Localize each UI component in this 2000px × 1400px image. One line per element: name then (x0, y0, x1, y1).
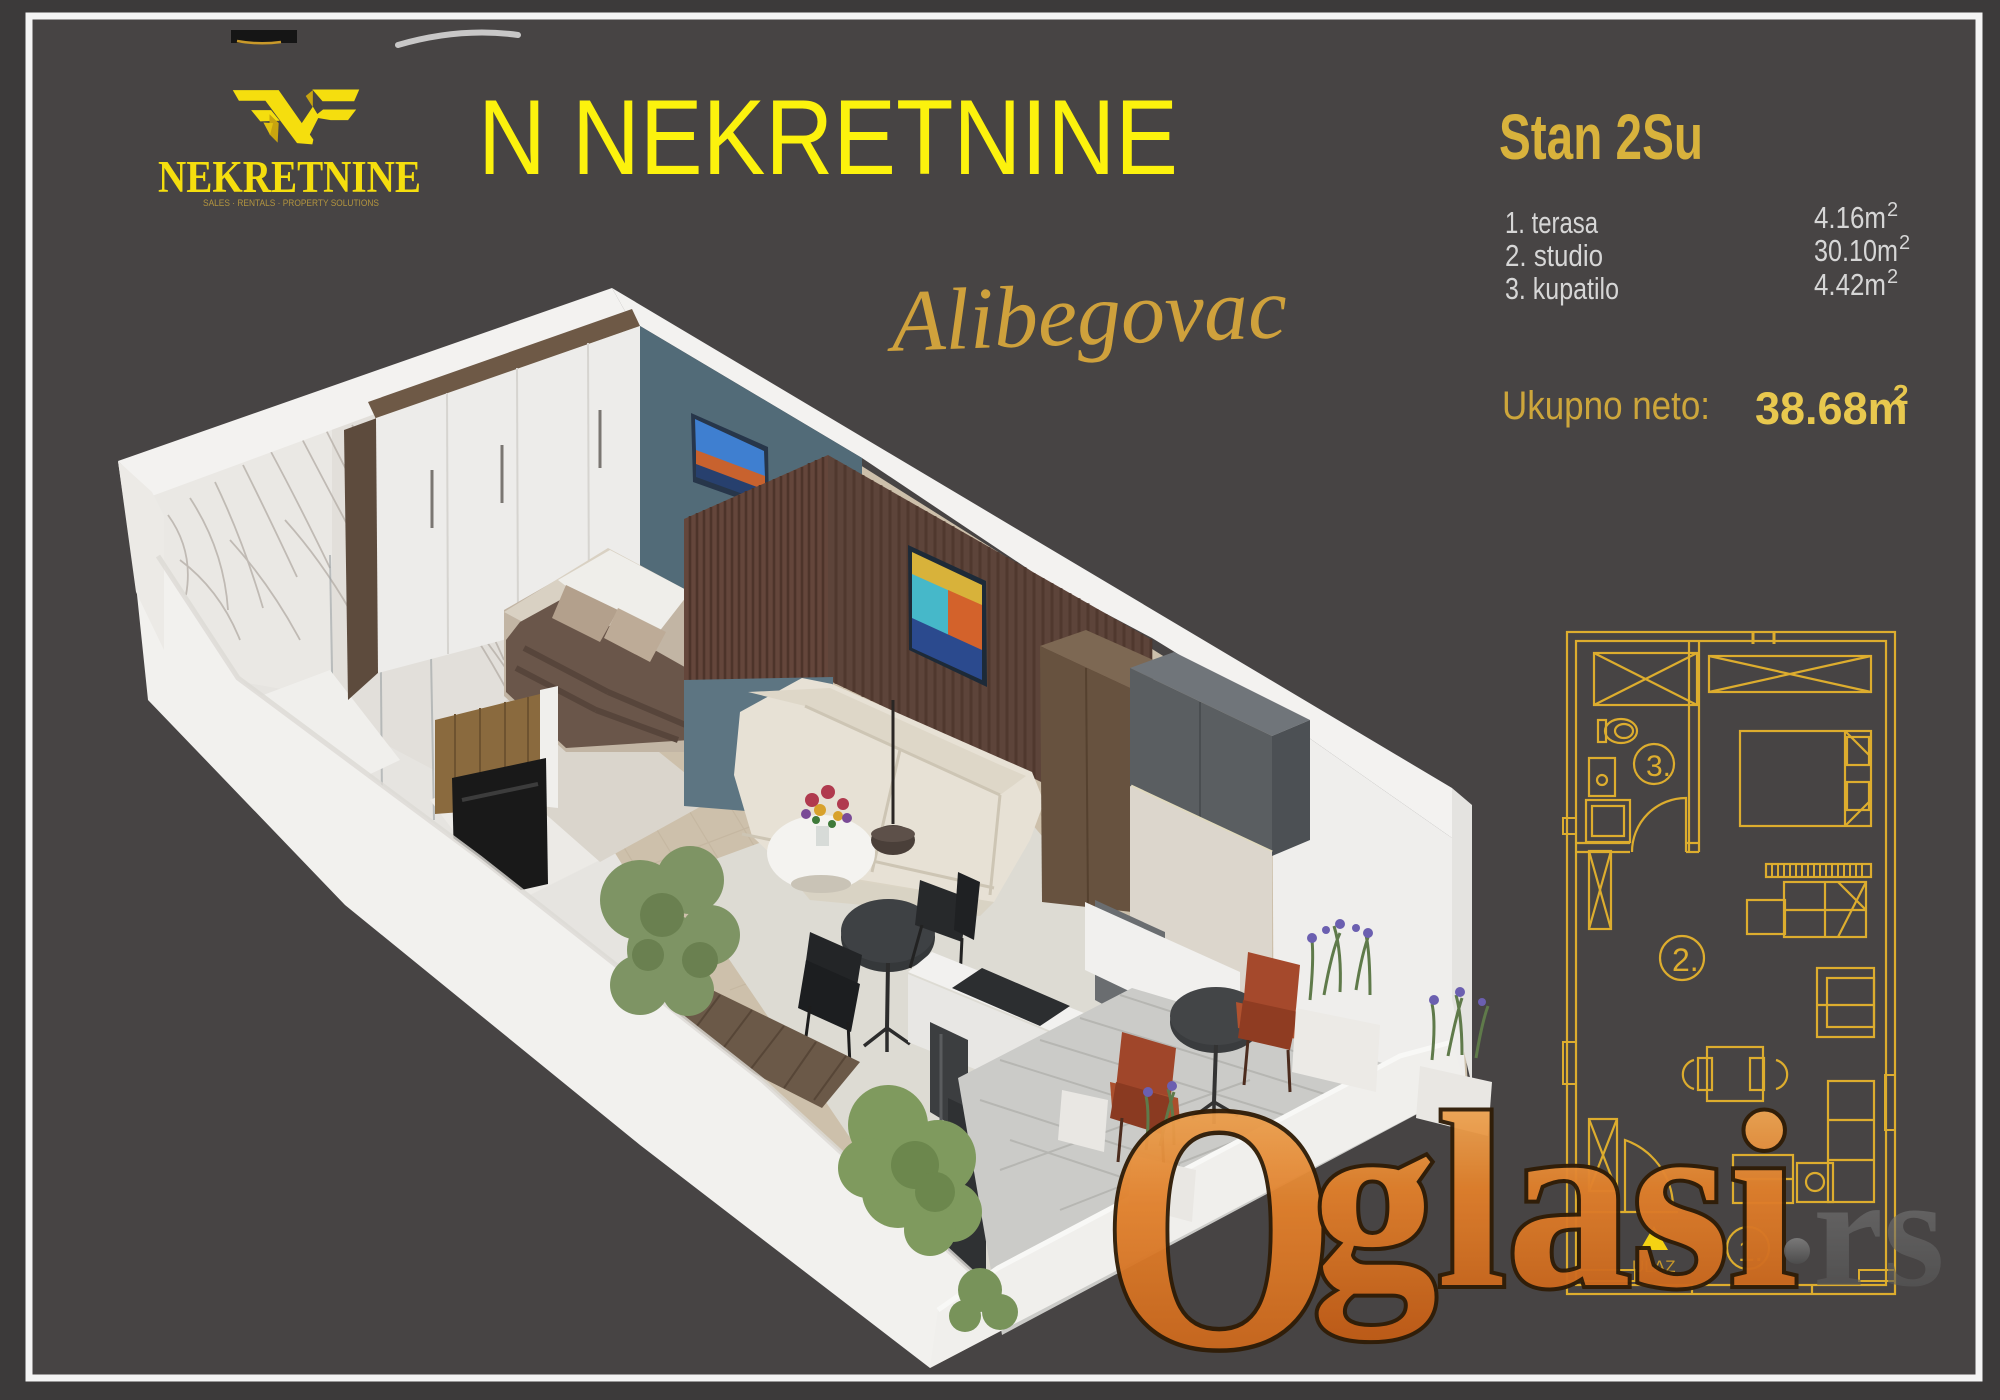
svg-text:30.10m: 30.10m (1814, 233, 1898, 268)
svg-text:2: 2 (1893, 379, 1909, 410)
svg-text:Stan 2Su: Stan 2Su (1499, 101, 1703, 173)
svg-text:3.: 3. (1646, 750, 1671, 783)
svg-text:4.16m: 4.16m (1814, 200, 1886, 235)
svg-text:rs: rs (1813, 1145, 1945, 1320)
svg-text:Alibegovac: Alibegovac (885, 260, 1289, 371)
svg-text:N NEKRETNINE: N NEKRETNINE (478, 77, 1178, 197)
svg-text:NEKRETNINE: NEKRETNINE (158, 152, 421, 202)
svg-text:38.68m: 38.68m (1755, 383, 1908, 434)
svg-text:O: O (1102, 1033, 1336, 1400)
svg-text:2. studio: 2. studio (1505, 238, 1603, 273)
svg-text:glasi: glasi (1312, 1063, 1798, 1340)
svg-text:1. terasa: 1. terasa (1505, 205, 1599, 240)
svg-text:2: 2 (1887, 266, 1898, 288)
svg-text:Ukupno neto:: Ukupno neto: (1502, 384, 1710, 428)
svg-text:3. kupatilo: 3. kupatilo (1505, 271, 1619, 306)
svg-text:4.42m: 4.42m (1814, 267, 1886, 302)
svg-text:2: 2 (1899, 232, 1910, 254)
svg-text:2: 2 (1887, 199, 1898, 221)
svg-text:2.: 2. (1672, 942, 1699, 978)
svg-text:SALES · RENTALS · PROPERTY SOL: SALES · RENTALS · PROPERTY SOLUTIONS (203, 198, 379, 208)
